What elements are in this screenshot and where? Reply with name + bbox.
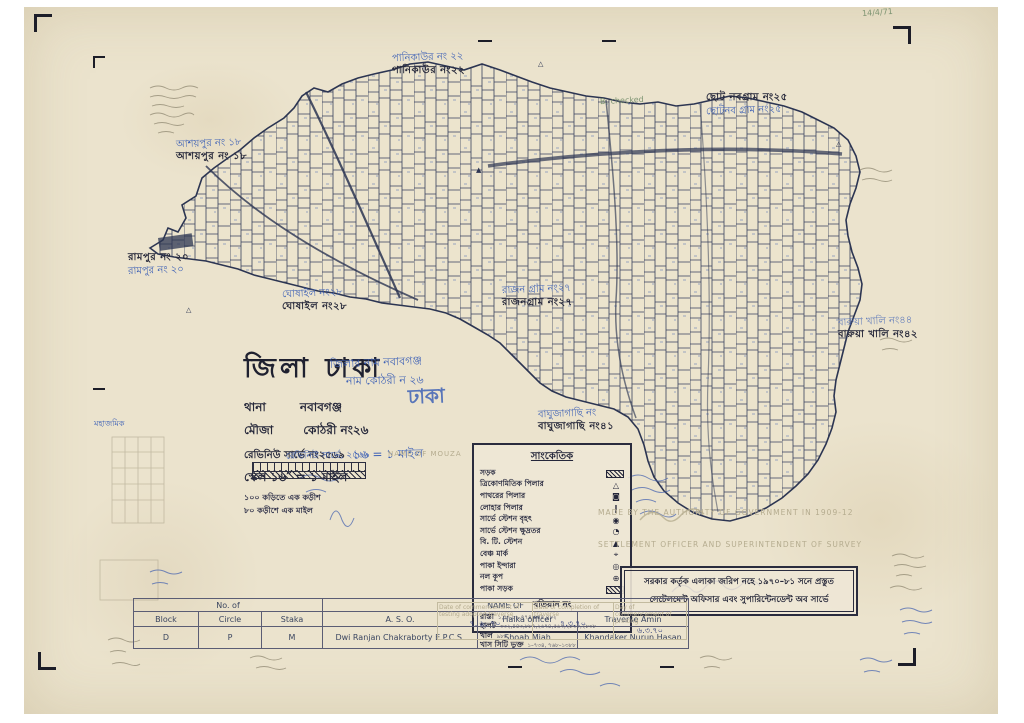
faint-officer-line: SETTLEMENT OFFICER AND SUPERINTENDENT OF… (598, 540, 862, 549)
handwritten-label: রাজন গ্রাম নং২৭ (502, 283, 573, 298)
thana-value: নবাবগঞ্জ (300, 399, 342, 419)
left-margin-blue-note: মহাজমিক (94, 418, 124, 431)
date-value-3: ৬.৩.৭০ (615, 625, 685, 638)
handwritten-label: ঘোষাইল নং২৮ (282, 287, 347, 302)
faint-authority-line: MADE BY THE AUTHORITY OF GOVERNMENT IN 1… (598, 508, 853, 517)
thana-label: থানা (244, 399, 266, 419)
legend-item-label: বেঞ্চ মার্ক (480, 549, 508, 561)
survey-triangle-icon: △ (836, 140, 841, 148)
table-header-circle: Circle (199, 612, 262, 627)
legend-item: পাকা সড়ক (480, 584, 624, 596)
legend-item-label: বি. টি. স্টেশন (480, 537, 522, 549)
survey-station-small-icon: ◔ (608, 527, 624, 536)
edge-tick (93, 388, 105, 390)
legend-item-label: নল কূপ (480, 572, 503, 584)
legend-item-label: পাকা সড়ক (480, 584, 513, 596)
survey-station-large-icon: ◉ (608, 516, 624, 525)
corner-mark-top-left (34, 14, 52, 32)
table-header-staka: Staka (262, 612, 323, 627)
road-hatch-icon (606, 470, 624, 478)
printed-label: রাজনগ্রাম নং২৭ (502, 297, 573, 310)
survey-triangle-icon: △ (538, 60, 543, 68)
mouza-label: মৌজা (244, 422, 273, 442)
neighbor-label-baghujagachhi: বাঘুজাগাছি নং বাঘুজাগাছি নং৪১ (538, 408, 614, 433)
trig-pillar-icon: △ (608, 481, 624, 490)
table-cell: D (134, 627, 199, 649)
edge-tick (660, 666, 674, 668)
mouza-value: কোঠরী নং২৬ (303, 422, 368, 442)
stamp-line-1: সরকার কর্তৃক এলাকা জরিপ নহে ১৯৭০–৮১ সনে … (630, 575, 848, 589)
legend-item-label: পাথরের পিলার (480, 491, 525, 503)
neighbor-label-rajnagram: রাজন গ্রাম নং২৭ রাজনগ্রাম নং২৭ (502, 284, 573, 309)
date-header-1: Date of commencement of testing adopted … (439, 604, 531, 618)
hand-overwrite-dhaka: ঢাকা (407, 381, 445, 416)
printed-label: ছোট নবগ্রাম নং২৫ (706, 92, 788, 105)
neighbor-label-panikaur: পানিকাউর নং ২২ পানিকাউর নং২২ (392, 52, 465, 77)
printed-label: পানিকাউর নং২২ (392, 65, 465, 78)
corner-mark-bottom-right (898, 648, 916, 666)
date-header-2: Date of completion of traverse (534, 604, 612, 618)
table-header-block: Block (134, 612, 199, 627)
legend-item-label: ত্রিকোণমিতিক পিলার (480, 479, 544, 491)
printed-label: বাঘুজাগাছি নং৪১ (538, 421, 614, 434)
legend-item-label: সার্ভে স্টেশন বৃহৎ (480, 514, 532, 526)
legend-item-label: পাকা ইন্দারা (480, 561, 516, 573)
corner-mark-top-right (893, 26, 911, 44)
legend-item-label: সড়ক (480, 468, 496, 480)
neighbor-label-ghoshail: ঘোষাইল নং২৮ ঘোষাইল নং২৮ (282, 288, 347, 313)
date-header-3: Day of commencement of printing (615, 604, 685, 625)
corner-mark-bottom-left (38, 652, 56, 670)
edge-tick (508, 666, 522, 668)
table-cell: M (262, 627, 323, 649)
dates-row: Date of commencement of testing adopted … (437, 602, 687, 640)
legend-item: সড়ক (480, 468, 624, 480)
scale-bar-hatch (252, 470, 366, 479)
faint-index-grid (100, 437, 164, 600)
table-cell: P (199, 627, 262, 649)
neighbor-label-barua-khali: বারুয়া খালি নং৪৪ বারুয়া খালি নং৪২ (838, 316, 918, 341)
legend-item: পাথরের পিলার◙ (480, 491, 624, 503)
legend-item: ত্রিকোণমিতিক পিলার△ (480, 480, 624, 492)
survey-triangle-icon: △ (186, 306, 191, 314)
legend-item: সার্ভে স্টেশন ক্ষুদ্রতর◔ (480, 526, 624, 538)
legend-title: সাংকেতিক (480, 449, 624, 466)
edge-tick (478, 40, 492, 42)
neighbor-label-ashaypur: আশয়পুর নং ১৮ আশয়পুর নং ১৮ (176, 138, 247, 163)
handwritten-label: পানিকাউর নং ২২ (392, 51, 465, 66)
handwritten-label: রামপুর নং ২০ (128, 263, 189, 278)
scanned-cadastral-map: { "colors":{"paper":"#ebe3cd","ink":"#26… (0, 0, 1024, 723)
stone-pillar-icon: ◙ (608, 492, 624, 501)
handwritten-label: ছোটনব গ্রাম নং২৫ (706, 103, 788, 118)
handwritten-label: বাঘুজাগাছি নং (538, 407, 614, 422)
neighbor-label-rampur: রামপুর নং ২০ রামপুর নং ২০ (128, 252, 189, 277)
date-value-2: ৭.৩.৭০ (534, 618, 612, 631)
date-value-1: ৭. ৯. ৭০ (439, 618, 531, 631)
legend-item: নল কূপ⊕ (480, 572, 624, 584)
legend-item-label: লোহার পিলার (480, 503, 523, 515)
neighbor-label-chhoto-nabagram: ছোট নবগ্রাম নং২৫ ছোটনব গ্রাম নং২৫ (706, 92, 788, 117)
legend-item-label: সার্ভে স্টেশন ক্ষুদ্রতর (480, 526, 541, 538)
printed-label: আশয়পুর নং ১৮ (176, 151, 247, 164)
faint-name-of-mouza: NAME OF MOUZA (388, 450, 462, 458)
printed-label: রামপুর নং ২০ (128, 252, 189, 265)
table-group-no-of: No. of (134, 599, 323, 612)
edge-tick (602, 40, 616, 42)
hand-survey-note: রেভিনিউ সার্ভে, ২৫৬৯ (286, 447, 370, 463)
printed-label: বারুয়া খালি নং৪২ (838, 329, 918, 342)
bench-mark-icon: ⌖ (608, 550, 624, 560)
legend-items: সড়কত্রিকোণমিতিক পিলার△পাথরের পিলার◙লোহা… (480, 468, 624, 596)
edge-tick (93, 56, 95, 68)
legend-item: পাকা ইন্দারা◎ (480, 561, 624, 573)
handwritten-label: আশয়পুর নং ১৮ (176, 137, 247, 152)
survey-triangle-icon: ▲ (476, 166, 481, 174)
legend-item: বেঞ্চ মার্ক⌖ (480, 549, 624, 561)
printed-label: ঘোষাইল নং২৮ (282, 301, 347, 314)
